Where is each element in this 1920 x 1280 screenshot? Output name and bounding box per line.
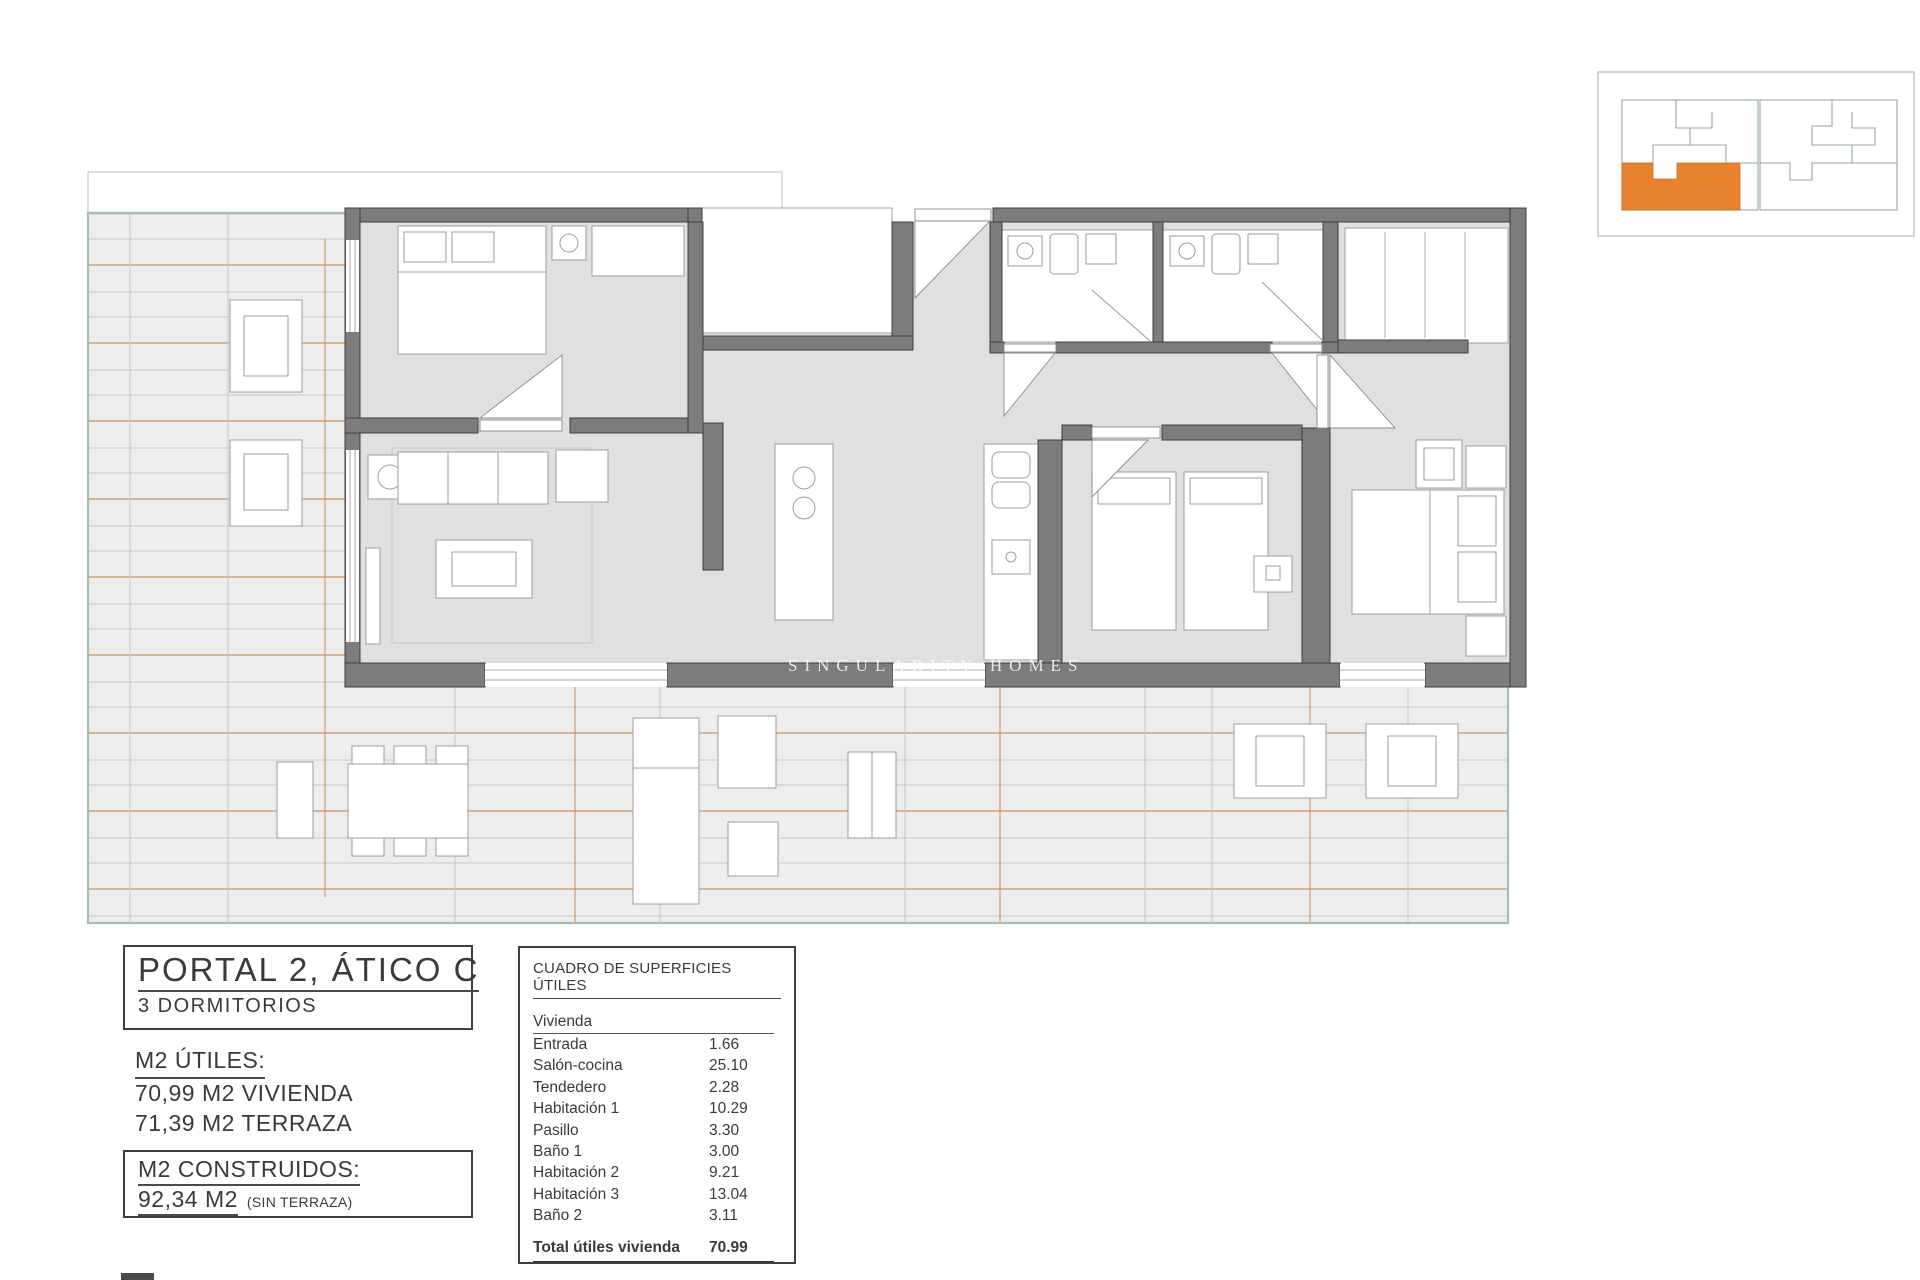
chair xyxy=(394,838,426,856)
key-plan-highlight xyxy=(1622,163,1740,210)
nightstand-1 xyxy=(552,226,586,260)
chaise xyxy=(633,718,699,904)
m2-construidos-block: M2 CONSTRUIDOS: 92,34 M2(SIN TERRAZA) xyxy=(123,1150,473,1218)
m2-construidos-note: (SIN TERRAZA) xyxy=(247,1194,353,1210)
toilet-icon xyxy=(1212,234,1240,274)
m2-construidos-value: 92,34 M2 xyxy=(138,1186,238,1216)
bathroom1-door xyxy=(1004,344,1056,352)
pergola-strip xyxy=(88,172,782,213)
terrace-bench xyxy=(277,762,313,838)
table-total-label: Total útiles vivienda xyxy=(533,1239,709,1257)
table-row: Habitación 313.04 xyxy=(533,1184,781,1205)
page-subtitle: 3 DORMITORIOS xyxy=(138,995,458,1018)
nightstand-2 xyxy=(1254,556,1292,592)
key-plan xyxy=(1598,72,1914,236)
outdoor-table xyxy=(728,822,778,876)
closet xyxy=(1345,228,1508,343)
surface-table-title: CUADRO DE SUPERFICIES ÚTILES xyxy=(533,960,781,999)
watermark: SINGULARITY HOMES xyxy=(788,656,1078,676)
bedroom3-door xyxy=(1317,355,1328,428)
chair xyxy=(436,838,468,856)
washer-icon xyxy=(1248,234,1278,264)
cropped-footer-fragment xyxy=(121,1273,154,1280)
table-row: Habitación 110.29 xyxy=(533,1098,781,1119)
sun-lounger-2 xyxy=(230,440,302,526)
sofa xyxy=(398,452,548,504)
coffee-table xyxy=(436,540,532,598)
surface-table-group: Vivienda xyxy=(533,1013,774,1034)
entry-door xyxy=(915,209,991,221)
chair xyxy=(352,746,384,764)
desk-1 xyxy=(592,226,684,276)
m2-construidos-label: M2 CONSTRUIDOS: xyxy=(138,1156,360,1186)
washer-icon xyxy=(1086,234,1116,264)
m2-utiles-label: M2 ÚTILES: xyxy=(135,1046,265,1079)
armchair xyxy=(556,450,608,502)
m2-utiles-vivienda: 70,99 M2 VIVIENDA xyxy=(135,1079,353,1109)
chair xyxy=(352,838,384,856)
kitchen-counter xyxy=(775,444,833,620)
bedroom1-door xyxy=(480,420,562,431)
m2-utiles-terraza: 71,39 M2 TERRAZA xyxy=(135,1109,353,1139)
table-total-row: Total útiles vivienda 70.99 xyxy=(533,1239,774,1262)
sink-icon xyxy=(1170,236,1204,266)
entry-porch xyxy=(702,208,892,333)
dresser xyxy=(1416,440,1462,488)
table-row: Salón-cocina25.10 xyxy=(533,1055,781,1076)
chair xyxy=(436,746,468,764)
tv-bench xyxy=(366,548,380,644)
page-title: PORTAL 2, ÁTICO C xyxy=(138,952,479,992)
floor-plan-page: SINGULARITY HOMES PORTAL 2, ÁTICO C 3 DO… xyxy=(0,0,1920,1280)
bathroom2-door xyxy=(1270,344,1322,352)
table-row: Pasillo3.30 xyxy=(533,1120,781,1141)
table-row: Tendedero2.28 xyxy=(533,1077,781,1098)
terrace-armchair-1 xyxy=(1234,724,1326,798)
table-row: Habitación 29.21 xyxy=(533,1162,781,1183)
outdoor-armchair xyxy=(718,716,776,788)
nightstand-3b xyxy=(1466,616,1506,656)
table-row: Baño 13.00 xyxy=(533,1141,781,1162)
m2-utiles-block: M2 ÚTILES: 70,99 M2 VIVIENDA 71,39 M2 TE… xyxy=(135,1046,353,1139)
nightstand-3a xyxy=(1466,446,1506,488)
terrace-armchair-2 xyxy=(1366,724,1458,798)
surface-table-rows: Entrada1.66 Salón-cocina25.10 Tendedero2… xyxy=(533,1034,781,1227)
sun-lounger-1 xyxy=(230,300,302,392)
table-row: Baño 23.11 xyxy=(533,1205,781,1226)
chair xyxy=(394,746,426,764)
title-block: PORTAL 2, ÁTICO C 3 DORMITORIOS xyxy=(123,945,473,1030)
table-total-value: 70.99 xyxy=(709,1239,748,1257)
surface-table: CUADRO DE SUPERFICIES ÚTILES Vivienda En… xyxy=(518,946,796,1264)
table-row: Entrada1.66 xyxy=(533,1034,781,1055)
toilet-icon xyxy=(1050,234,1078,274)
bedroom2-door xyxy=(1092,427,1160,438)
dining-table xyxy=(348,764,468,838)
sink-icon xyxy=(1008,236,1042,266)
sink-basin xyxy=(992,452,1030,478)
